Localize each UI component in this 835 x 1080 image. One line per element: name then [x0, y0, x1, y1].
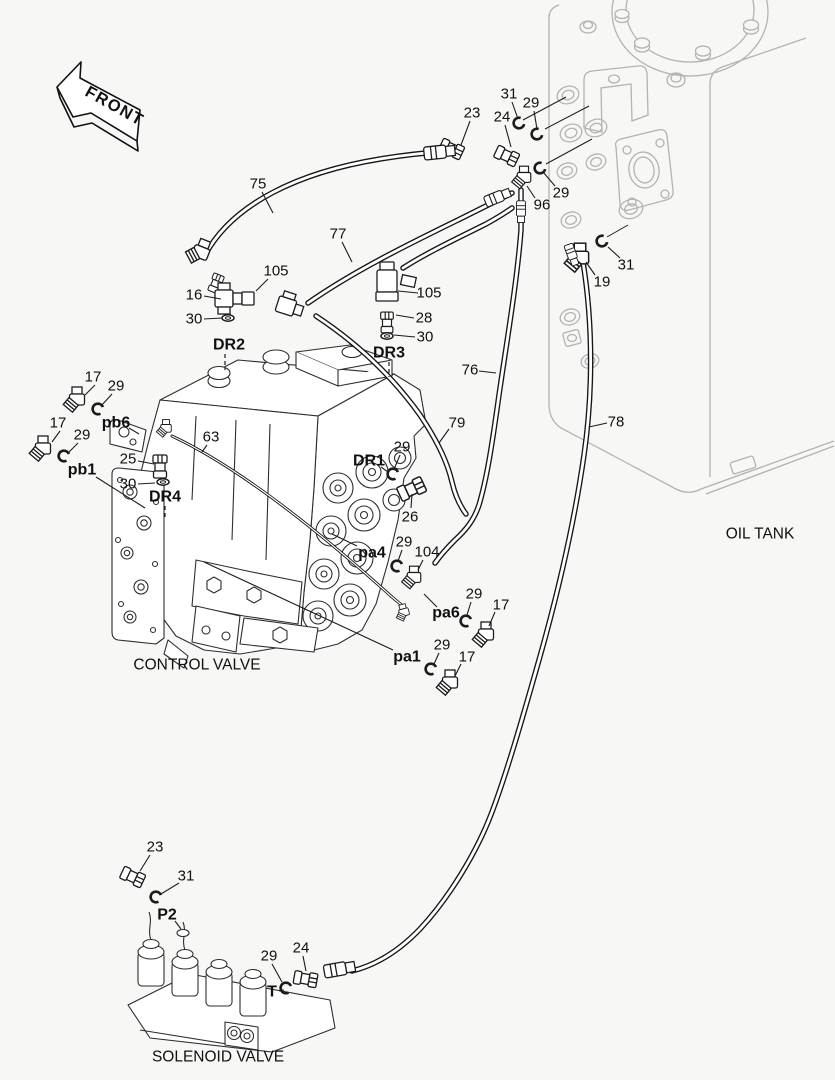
leader-line — [140, 855, 150, 871]
leader-line — [505, 125, 511, 147]
callout-label-77: 77 — [330, 226, 347, 243]
leader-line — [161, 883, 179, 894]
leader-line — [85, 385, 95, 395]
callout-label-29: 29 — [108, 378, 125, 395]
leader-line — [418, 560, 423, 570]
leader-line — [439, 429, 449, 443]
callout-label-31: 31 — [178, 868, 195, 885]
elbow-17-pb1 — [29, 436, 50, 461]
leader-line — [303, 956, 306, 971]
tank-ports — [555, 83, 645, 370]
callout-label-25: 25 — [120, 451, 137, 468]
callout-label-pa6: pa6 — [432, 605, 460, 622]
leader-line — [396, 315, 414, 318]
callout-label-17: 17 — [50, 415, 67, 432]
tee-105b — [275, 290, 307, 319]
callout-label-pb1: pb1 — [68, 462, 97, 479]
callout-label-17: 17 — [85, 369, 102, 386]
callout-label-105: 105 — [416, 285, 441, 302]
leader-line — [204, 318, 222, 319]
leader-line — [455, 664, 461, 676]
callout-label-DR2: DR2 — [213, 337, 245, 354]
fitting-25 — [153, 455, 167, 478]
callout-label-29: 29 — [466, 586, 483, 603]
callout-label-63: 63 — [203, 429, 220, 446]
callout-label-75: 75 — [250, 176, 267, 193]
callout-label-16: 16 — [186, 287, 203, 304]
callout-label-17: 17 — [459, 649, 476, 666]
leader-line — [479, 371, 496, 373]
oil-tank-caption: OIL TANK — [726, 526, 795, 543]
callout-label-DR3: DR3 — [373, 345, 405, 362]
callout-label-23: 23 — [147, 839, 164, 856]
callout-label-30: 30 — [186, 311, 203, 328]
callout-label-79: 79 — [449, 415, 466, 432]
elbow-17-pb6 — [63, 387, 84, 412]
fitting-24-top — [493, 145, 520, 167]
callout-label-17: 17 — [493, 597, 510, 614]
leader-line — [101, 394, 112, 406]
tee-dr3-stack — [376, 262, 416, 333]
callout-label-pb6: pb6 — [102, 415, 131, 432]
callout-label-78: 78 — [608, 414, 625, 431]
callout-label-24: 24 — [293, 940, 310, 957]
callout-label-29: 29 — [434, 637, 451, 654]
leader-line — [398, 550, 402, 561]
leader-line — [272, 964, 282, 982]
leader-line — [467, 602, 471, 615]
callout-label-96: 96 — [534, 197, 551, 214]
callout-label-29: 29 — [394, 439, 411, 456]
callout-label-29: 29 — [553, 185, 570, 202]
leader-line — [589, 423, 607, 427]
callout-label-31: 31 — [501, 86, 518, 103]
elbow-75-start — [182, 235, 213, 268]
callout-label-104: 104 — [414, 544, 439, 561]
oil-tank-drawing — [549, 0, 834, 494]
elbow-17-pa1 — [436, 670, 457, 695]
port-p2 — [177, 930, 189, 937]
callout-label-T: T — [267, 984, 277, 1001]
callout-label-DR4: DR4 — [149, 489, 181, 506]
callout-label-105: 105 — [263, 263, 288, 280]
callout-label-P2: P2 — [157, 907, 177, 924]
callout-label-26: 26 — [402, 509, 419, 526]
leader-line — [256, 279, 268, 291]
leader-line — [342, 242, 352, 262]
leader-line — [68, 443, 78, 453]
leader-line — [461, 121, 470, 145]
tank-flange — [616, 130, 674, 211]
parts-diagram-page: FRONT 75771051630DR21052830DR32324312929… — [0, 0, 835, 1080]
callout-label-23: 23 — [464, 105, 481, 122]
coupler-77-end — [483, 187, 512, 207]
elbow-17-pa6 — [472, 622, 493, 647]
coupler-76-nut — [516, 201, 525, 223]
callout-label-29: 29 — [261, 948, 278, 965]
elbow-96 — [512, 166, 531, 189]
elbow-63-end — [393, 603, 411, 622]
callout-label-DR1: DR1 — [353, 453, 385, 470]
control-valve-caption: CONTROL VALVE — [133, 657, 260, 674]
callout-label-28: 28 — [416, 310, 433, 327]
coupler-75-end — [423, 144, 455, 160]
leader-line — [394, 335, 415, 337]
callout-label-pa1: pa1 — [393, 649, 421, 666]
callout-label-30: 30 — [120, 476, 137, 493]
solenoid-valve-caption: SOLENOID VALVE — [152, 1049, 284, 1066]
callout-label-19: 19 — [594, 274, 611, 291]
flange-bolts — [615, 10, 759, 61]
front-arrow: FRONT — [57, 62, 147, 151]
callout-label-30: 30 — [417, 329, 434, 346]
callout-label-29: 29 — [396, 534, 413, 551]
callout-label-29: 29 — [523, 95, 540, 112]
callout-label-24: 24 — [494, 109, 511, 126]
callout-label-76: 76 — [462, 362, 479, 379]
leader-line — [434, 653, 439, 664]
callout-label-31: 31 — [618, 257, 635, 274]
piping-diagram: FRONT 75771051630DR21052830DR32324312929… — [0, 0, 835, 1080]
leader-line — [398, 291, 418, 293]
leader-line — [52, 431, 60, 442]
fitting-24-bottom — [293, 970, 318, 988]
leader-line — [512, 102, 518, 119]
callout-label-29: 29 — [74, 427, 91, 444]
callout-label-pa4: pa4 — [358, 545, 386, 562]
leader-line — [489, 612, 495, 626]
control-valve-drawing — [110, 345, 426, 668]
coupler-78-end — [323, 960, 356, 978]
